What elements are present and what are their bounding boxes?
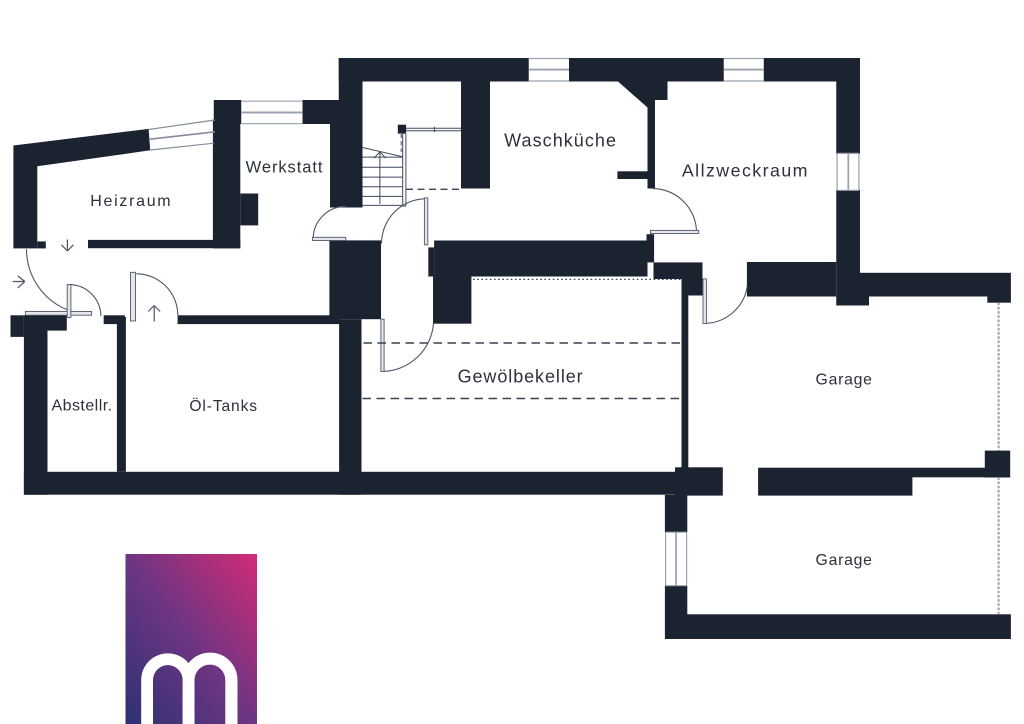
svg-text:Heizraum: Heizraum [90, 193, 172, 210]
svg-text:Abstellr.: Abstellr. [51, 398, 112, 415]
svg-text:Öl-Tanks: Öl-Tanks [189, 397, 258, 415]
svg-text:Garage: Garage [816, 552, 873, 569]
svg-text:Garage: Garage [816, 371, 873, 388]
svg-text:Waschküche: Waschküche [504, 130, 617, 150]
svg-text:Gewölbekeller: Gewölbekeller [458, 367, 584, 387]
svg-text:Allzweckraum: Allzweckraum [682, 161, 809, 181]
svg-text:Werkstatt: Werkstatt [246, 159, 324, 177]
